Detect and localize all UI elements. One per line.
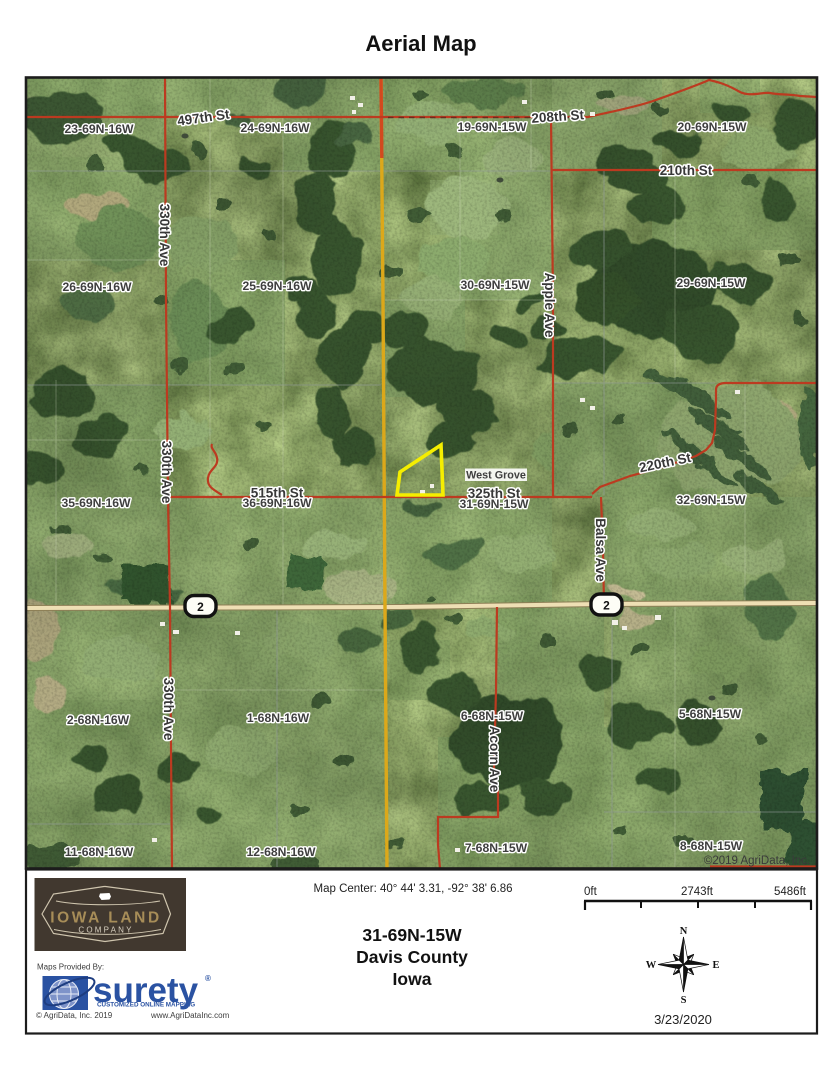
svg-text:©2019 AgriData, Inc.: ©2019 AgriData, Inc.: [704, 855, 810, 867]
svg-text:7-68N-15W: 7-68N-15W: [465, 841, 528, 855]
svg-text:6-68N-15W: 6-68N-15W: [461, 709, 524, 723]
svg-text:E: E: [712, 960, 719, 971]
svg-text:12-68N-16W: 12-68N-16W: [246, 845, 316, 859]
svg-text:S: S: [681, 995, 687, 1006]
svg-text:330th Ave: 330th Ave: [157, 204, 172, 267]
svg-text:N: N: [680, 926, 688, 937]
svg-text:330th Ave: 330th Ave: [161, 678, 176, 741]
svg-text:West Grove: West Grove: [466, 470, 526, 482]
svg-text:210th St: 210th St: [660, 163, 713, 178]
svg-text:2: 2: [197, 600, 204, 614]
svg-text:11-68N-16W: 11-68N-16W: [65, 845, 134, 859]
svg-text:Map Center: 40° 44' 3.31, -92: Map Center: 40° 44' 3.31, -92° 38' 6.86: [314, 883, 513, 895]
svg-text:330th Ave: 330th Ave: [159, 441, 174, 504]
svg-text:5486ft: 5486ft: [774, 886, 807, 898]
svg-text:20-69N-15W: 20-69N-15W: [677, 120, 747, 134]
svg-text:29-69N-15W: 29-69N-15W: [676, 276, 746, 290]
svg-text:23-69N-16W: 23-69N-16W: [64, 122, 134, 136]
svg-text:5-68N-15W: 5-68N-15W: [679, 707, 742, 721]
svg-text:26-69N-16W: 26-69N-16W: [62, 280, 132, 294]
svg-text:2743ft: 2743ft: [681, 886, 714, 898]
svg-text:COMPANY: COMPANY: [78, 926, 133, 935]
svg-text:32-69N-15W: 32-69N-15W: [676, 493, 746, 507]
svg-text:2-68N-16W: 2-68N-16W: [67, 713, 130, 727]
svg-text:8-68N-15W: 8-68N-15W: [680, 839, 743, 853]
svg-text:®: ®: [205, 974, 211, 983]
svg-text:2: 2: [603, 599, 610, 613]
svg-text:25-69N-16W: 25-69N-16W: [242, 279, 312, 293]
svg-text:IOWA LAND: IOWA LAND: [50, 910, 162, 927]
svg-text:30-69N-15W: 30-69N-15W: [460, 278, 530, 292]
svg-text:325th St: 325th St: [468, 486, 521, 501]
svg-text:Iowa: Iowa: [393, 969, 432, 989]
svg-text:515th St: 515th St: [251, 486, 304, 501]
svg-text:CUSTOMIZED ONLINE MAPPING: CUSTOMIZED ONLINE MAPPING: [97, 1002, 195, 1009]
svg-text:3/23/2020: 3/23/2020: [654, 1012, 712, 1027]
svg-text:24-69N-16W: 24-69N-16W: [240, 121, 310, 135]
svg-text:Aerial Map: Aerial Map: [365, 31, 476, 56]
svg-text:Davis County: Davis County: [356, 947, 468, 967]
svg-text:19-69N-15W: 19-69N-15W: [457, 120, 527, 134]
svg-text:31-69N-15W: 31-69N-15W: [362, 925, 462, 945]
svg-text:W: W: [646, 960, 657, 971]
svg-text:Acorn Ave: Acorn Ave: [487, 726, 502, 793]
svg-text:Balsa Ave: Balsa Ave: [593, 518, 608, 582]
svg-text:Apple Ave: Apple Ave: [542, 272, 557, 338]
svg-text:© AgriData, Inc. 2019: © AgriData, Inc. 2019: [36, 1011, 113, 1020]
svg-text:1-68N-16W: 1-68N-16W: [247, 711, 310, 725]
svg-text:www.AgriDataInc.com: www.AgriDataInc.com: [150, 1011, 230, 1020]
svg-text:0ft: 0ft: [584, 886, 598, 898]
svg-text:35-69N-16W: 35-69N-16W: [61, 496, 131, 510]
